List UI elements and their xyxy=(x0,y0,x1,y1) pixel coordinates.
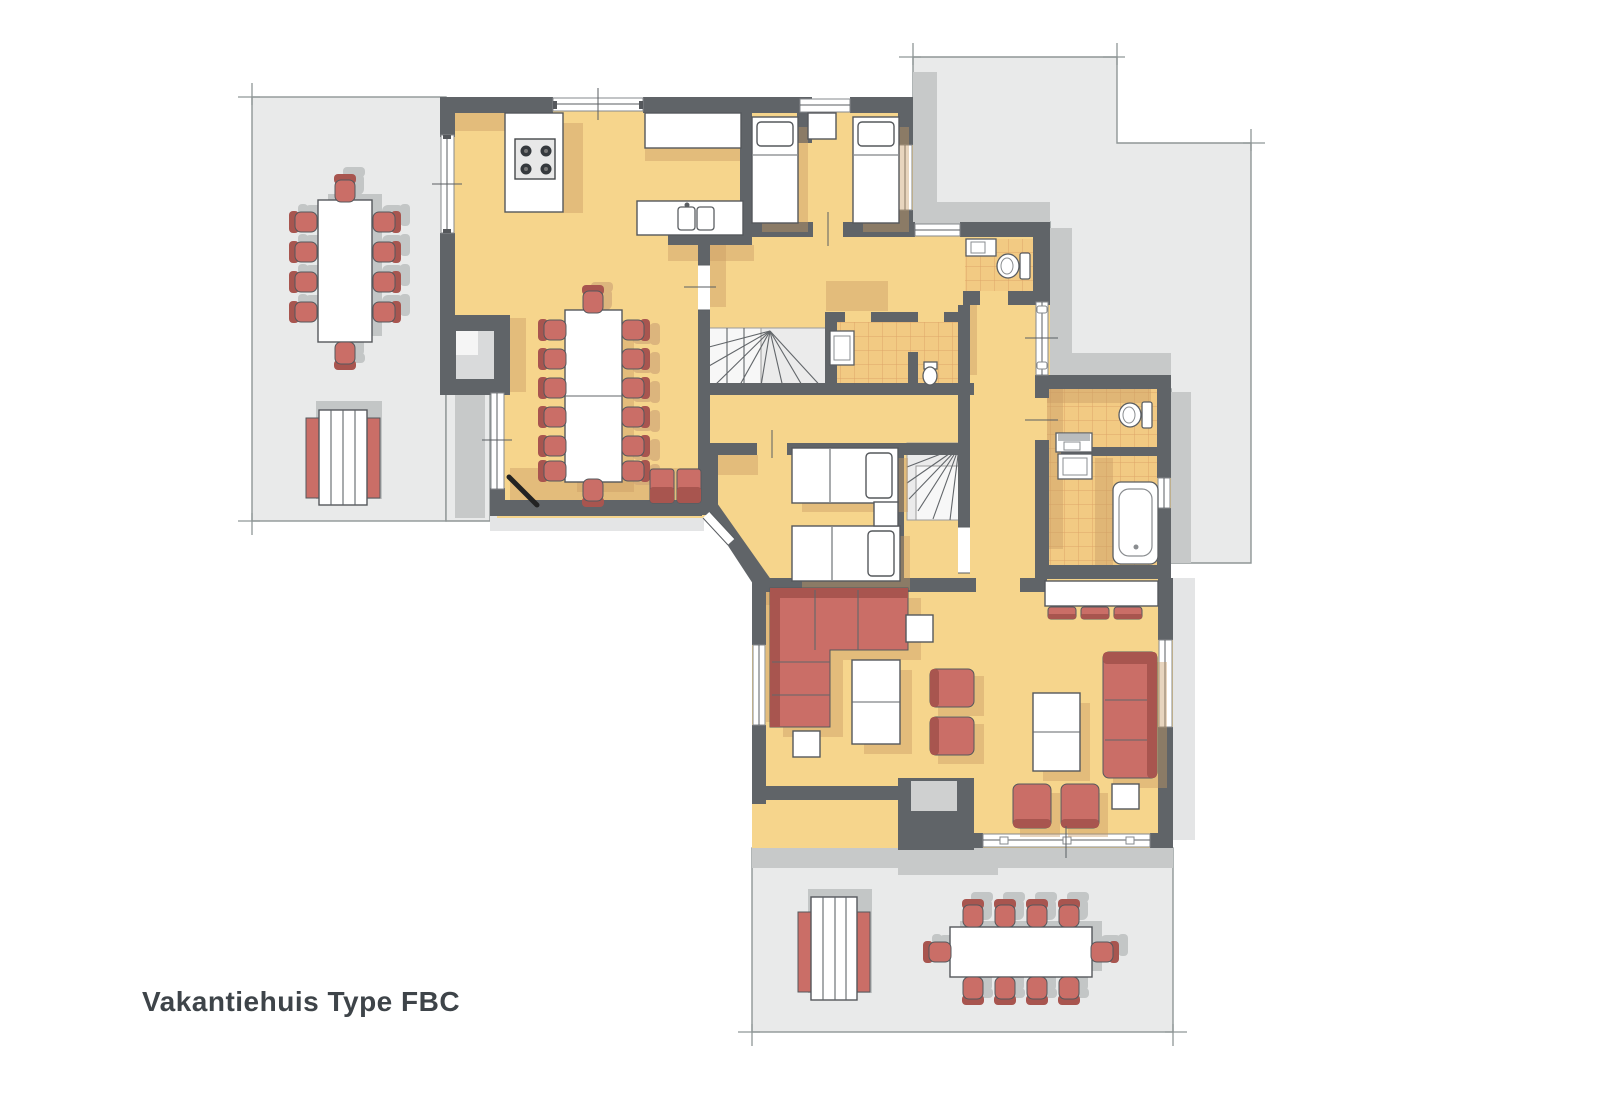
chair-icon xyxy=(622,460,650,482)
sideboard xyxy=(1045,581,1158,619)
sink-icon xyxy=(697,207,714,230)
side-table xyxy=(906,615,933,642)
chair-icon xyxy=(334,174,356,202)
chair-icon xyxy=(289,271,317,293)
dining-niche xyxy=(440,315,510,395)
hall-living-opening xyxy=(958,527,970,573)
side-table xyxy=(1112,784,1139,809)
chair-icon xyxy=(622,406,650,428)
chair-icon xyxy=(1091,941,1119,963)
bed xyxy=(792,526,900,581)
hall-window-terrace xyxy=(915,224,960,236)
chair-icon xyxy=(962,977,984,1005)
chair-icon xyxy=(373,271,401,293)
chair-icon xyxy=(962,899,984,927)
sofa-right xyxy=(1103,652,1157,778)
toilet-icon xyxy=(923,362,937,385)
coffee-table xyxy=(852,660,900,744)
chair-icon xyxy=(1058,977,1080,1005)
chair-icon xyxy=(538,435,566,457)
armchair xyxy=(1061,784,1099,828)
stool xyxy=(1048,607,1076,619)
chair-icon xyxy=(622,319,650,341)
sink-icon xyxy=(678,207,695,230)
chair-icon xyxy=(1026,899,1048,927)
stove-icon xyxy=(515,139,555,179)
terrace-bottom-furniture xyxy=(798,889,1128,1005)
outdoor-dining-table xyxy=(950,927,1092,977)
nightstand xyxy=(874,502,898,526)
nightstand xyxy=(808,113,836,139)
kitchen-counter-top xyxy=(645,113,741,148)
chair-icon xyxy=(289,211,317,233)
chair-icon xyxy=(538,406,566,428)
stool xyxy=(1114,607,1142,619)
chair-icon xyxy=(1058,899,1080,927)
chimney-block xyxy=(898,778,974,850)
extra-chair xyxy=(677,469,701,503)
side-table xyxy=(793,731,820,757)
armchair xyxy=(930,669,974,707)
house-shadow-east xyxy=(1173,578,1195,840)
chair-icon xyxy=(289,241,317,263)
armchair xyxy=(1013,784,1051,828)
vanity-sink xyxy=(1056,433,1092,452)
chair-icon xyxy=(622,377,650,399)
armchair xyxy=(930,717,974,755)
chair-icon xyxy=(538,348,566,370)
chair-icon xyxy=(622,348,650,370)
chair-icon xyxy=(373,241,401,263)
lounger xyxy=(798,889,872,1000)
chair-icon xyxy=(923,941,951,963)
bedroom1-window-top xyxy=(800,99,850,112)
chair-icon xyxy=(289,301,317,323)
living-window-left xyxy=(753,645,765,725)
chair-icon xyxy=(373,211,401,233)
bed xyxy=(752,117,798,223)
toilet-icon xyxy=(1119,402,1152,428)
chair-icon xyxy=(1026,977,1048,1005)
washing-machine-icon xyxy=(1058,454,1092,479)
lounger xyxy=(306,401,382,505)
dining-terrace-door xyxy=(491,393,504,489)
kitchen-sink-counter xyxy=(637,201,743,235)
bed xyxy=(853,117,899,223)
bathroom-window xyxy=(1158,478,1170,508)
chair-icon xyxy=(538,377,566,399)
coffee-table xyxy=(1033,693,1080,771)
floor-plan-svg xyxy=(0,0,1600,1095)
stool xyxy=(1081,607,1109,619)
chair-icon xyxy=(622,435,650,457)
floor-plan-page: Vakantiehuis Type FBC xyxy=(0,0,1600,1095)
toilet-icon xyxy=(997,253,1030,279)
chair-icon xyxy=(994,977,1016,1005)
bed xyxy=(792,448,898,503)
chair-icon xyxy=(994,899,1016,927)
bathtub-icon xyxy=(1113,482,1158,564)
extra-chair xyxy=(650,469,674,503)
house-shadow-dining xyxy=(490,516,704,531)
chair-icon xyxy=(334,342,356,370)
chair-icon xyxy=(538,460,566,482)
chair-icon xyxy=(538,319,566,341)
chair-icon xyxy=(582,479,604,507)
page-title: Vakantiehuis Type FBC xyxy=(142,986,460,1018)
chair-icon xyxy=(373,301,401,323)
outdoor-dining-table xyxy=(318,200,372,342)
chair-icon xyxy=(582,285,604,313)
